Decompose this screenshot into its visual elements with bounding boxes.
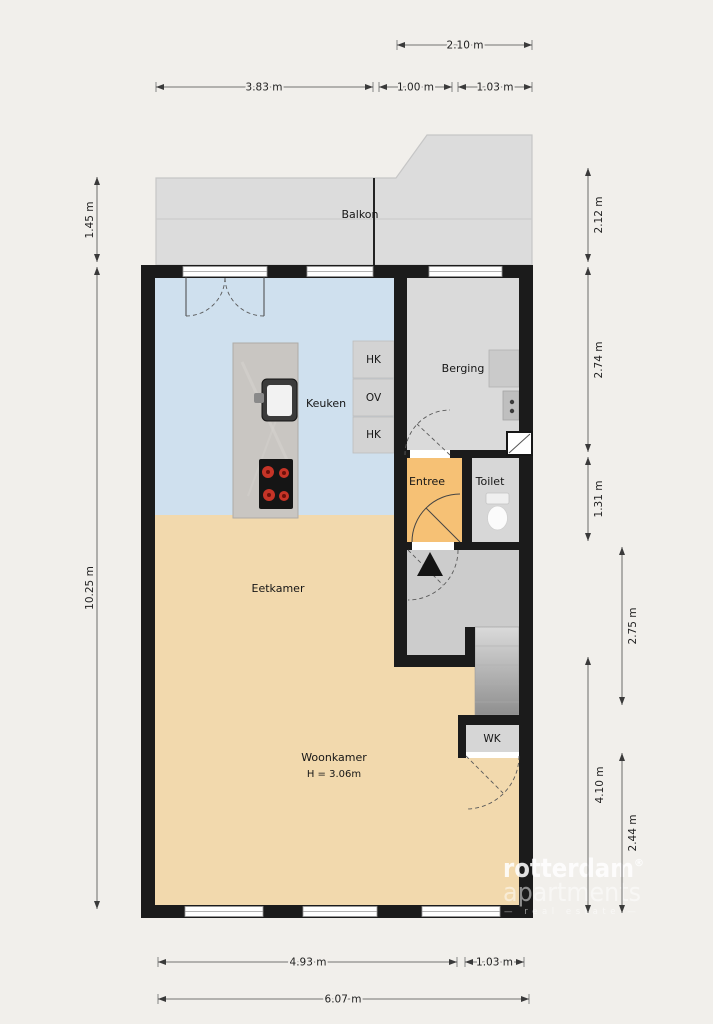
ceiling-height-label: H = 3.06m (307, 769, 361, 780)
window (422, 907, 500, 917)
dim-label: 2.12 m (593, 197, 605, 234)
balcony (156, 135, 532, 265)
shaft-icon (507, 432, 532, 455)
window-french-door (183, 267, 267, 277)
hallway-floor-lower (407, 627, 465, 655)
kitchen-label: Keuken (306, 397, 346, 410)
floorplan: Balkon Keuken HK OV HK Berging Entree To… (0, 0, 713, 1024)
closet-hk-top-label: HK (366, 354, 382, 366)
woonkamer-label: Woonkamer (301, 751, 367, 764)
entree-floor (407, 458, 462, 542)
dim-label: 1.03 m (477, 82, 514, 94)
dim-label: 6.07 m (325, 994, 362, 1006)
dim-label: 3.83 m (246, 82, 283, 94)
closet-ov-label: OV (366, 392, 382, 404)
registered-mark: ® (634, 858, 644, 869)
wk-door-opening (466, 752, 519, 758)
floorplan-canvas: Balkon Keuken HK OV HK Berging Entree To… (0, 0, 713, 1024)
balcony-floor (156, 135, 532, 265)
brand-tagline: — real estate — (504, 907, 638, 917)
berging-counter (489, 350, 519, 387)
berging-door-opening (410, 450, 450, 458)
dim-label: 10.25 m (84, 566, 96, 610)
dim-label: 1.03 m (476, 957, 513, 969)
dim-label: 2.74 m (593, 342, 605, 379)
staircase (475, 627, 519, 715)
entree-door-opening (412, 542, 454, 550)
wk-label: WK (483, 733, 501, 745)
window (185, 907, 263, 917)
dim-label: 4.10 m (594, 767, 606, 804)
window (307, 267, 373, 277)
dim-label: 2.44 m (627, 815, 639, 852)
dim-label: 1.45 m (84, 202, 96, 239)
brand-name-2: apartments (503, 878, 641, 908)
dim-bottom-right-width: 1.03 m (465, 957, 524, 969)
dim-entree-height: 1.31 m (588, 457, 605, 541)
dim-label: 1.00 m (397, 82, 434, 94)
toilet-label: Toilet (475, 475, 505, 488)
dim-top-seg-2: 1.03 m (458, 82, 532, 94)
eetkamer-label: Eetkamer (252, 582, 305, 595)
dim-berging-height: 2.74 m (588, 267, 605, 452)
dim-total-height: 10.25 m (84, 267, 97, 909)
window (303, 907, 377, 917)
dim-balcony-depth: 1.45 m (84, 177, 97, 262)
dim-bottom-left-width: 4.93 m (158, 957, 457, 969)
dim-label: 2.10 m (447, 40, 484, 52)
balcony-label: Balkon (341, 208, 378, 221)
dim-label: 1.31 m (593, 481, 605, 518)
entree-label: Entree (409, 475, 445, 488)
brand-logo: rotterdam® apartments — real estate — (503, 854, 644, 917)
cooktop-icon (259, 459, 293, 509)
toilet-fixture-icon (486, 493, 509, 530)
washer-icon (503, 391, 519, 420)
window (429, 267, 502, 277)
dim-label: 4.93 m (290, 957, 327, 969)
berging-label: Berging (442, 362, 485, 375)
dim-label: 2.75 m (627, 608, 639, 645)
dim-hall-height: 2.75 m (622, 547, 639, 705)
dim-top-seg-1: 1.00 m (379, 82, 452, 94)
dim-balcony-right-width: 2.10 m (397, 40, 532, 52)
dim-bottom-total-width: 6.07 m (158, 994, 529, 1006)
dim-balcony-height: 2.12 m (588, 168, 605, 262)
hallway-floor (407, 550, 519, 627)
closet-hk-bottom-label: HK (366, 429, 382, 441)
faucet-icon (254, 393, 264, 403)
dim-top-left-width: 3.83 m (156, 82, 373, 94)
